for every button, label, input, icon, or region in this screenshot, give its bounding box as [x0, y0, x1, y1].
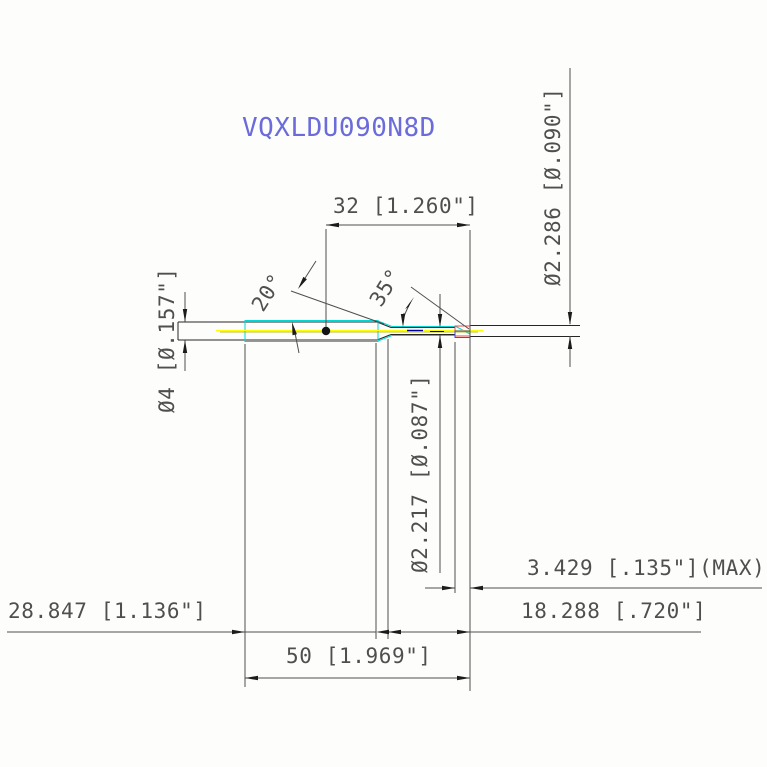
- angle-dimension-35: 35°: [365, 264, 469, 329]
- dimension-length-28847: 28.847 [1.136"]: [7, 343, 389, 639]
- dia-4-label: Ø4 [Ø.157"]: [155, 267, 179, 413]
- arrowhead: [326, 223, 339, 227]
- angle-dimension-20: 20°: [247, 261, 384, 353]
- dimension-length-32: 32 [1.260"]: [326, 194, 479, 691]
- angle-20-label: 20°: [247, 269, 288, 315]
- arrowhead: [457, 676, 470, 680]
- length-50-label: 50 [1.969"]: [286, 644, 432, 668]
- probe-technical-drawing: Ø4 [Ø.157"] 32 [1.260"] Ø2.286 [Ø.090"] …: [0, 0, 767, 767]
- arrowhead: [401, 314, 405, 327]
- arrowhead: [183, 340, 187, 353]
- arrowhead: [183, 309, 187, 322]
- dimension-dia-2286: Ø2.286 [Ø.090"]: [541, 68, 572, 367]
- arrowhead: [292, 322, 297, 335]
- arrowhead: [457, 223, 470, 227]
- part-number-title: VQXLDU090N8D: [242, 113, 436, 143]
- length-32-label: 32 [1.260"]: [333, 194, 479, 218]
- arrowhead: [457, 630, 470, 634]
- dia-2286-label: Ø2.286 [Ø.090"]: [541, 87, 565, 286]
- tip-3429-label: 3.429 [.135"](MAX): [527, 556, 765, 580]
- arrowhead: [376, 630, 389, 634]
- arrowhead: [298, 277, 307, 289]
- length-18288-label: 18.288 [.720"]: [521, 599, 706, 623]
- angle-35-label: 35°: [365, 264, 406, 310]
- dimension-length-50: 50 [1.969"]: [245, 344, 470, 687]
- dia-2217-label: Ø2.217 [Ø.087"]: [408, 374, 432, 573]
- probe-highlight-overlays: [216, 321, 483, 342]
- arrowhead: [470, 586, 483, 590]
- reference-point-dot: [322, 327, 330, 335]
- arrowhead: [568, 336, 572, 349]
- dimension-length-18288: 18.288 [.720"]: [388, 339, 706, 639]
- arrowhead: [438, 335, 442, 348]
- arrowhead: [568, 312, 572, 325]
- arrowhead: [438, 314, 442, 327]
- drawing-canvas: Ø4 [Ø.157"] 32 [1.260"] Ø2.286 [Ø.090"] …: [0, 0, 767, 767]
- arrowhead: [388, 630, 401, 634]
- length-28847-label: 28.847 [1.136"]: [8, 599, 207, 623]
- arrowhead: [232, 630, 245, 634]
- arrowhead: [442, 586, 455, 590]
- dimension-tip-3429: 3.429 [.135"](MAX): [425, 342, 765, 593]
- arrowhead: [245, 676, 258, 680]
